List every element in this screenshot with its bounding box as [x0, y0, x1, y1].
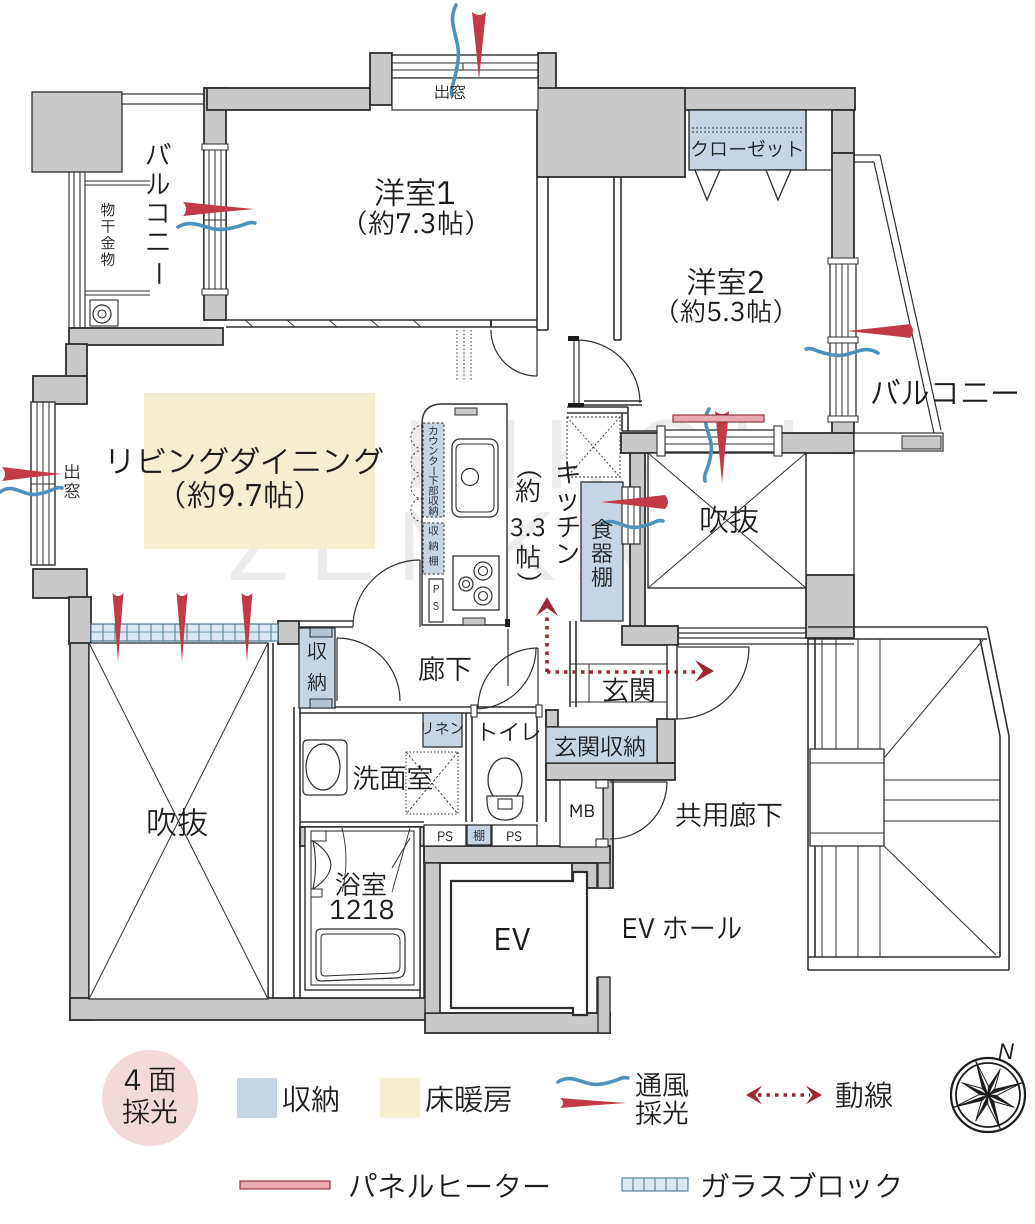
svg-text:N: N	[998, 1039, 1014, 1064]
